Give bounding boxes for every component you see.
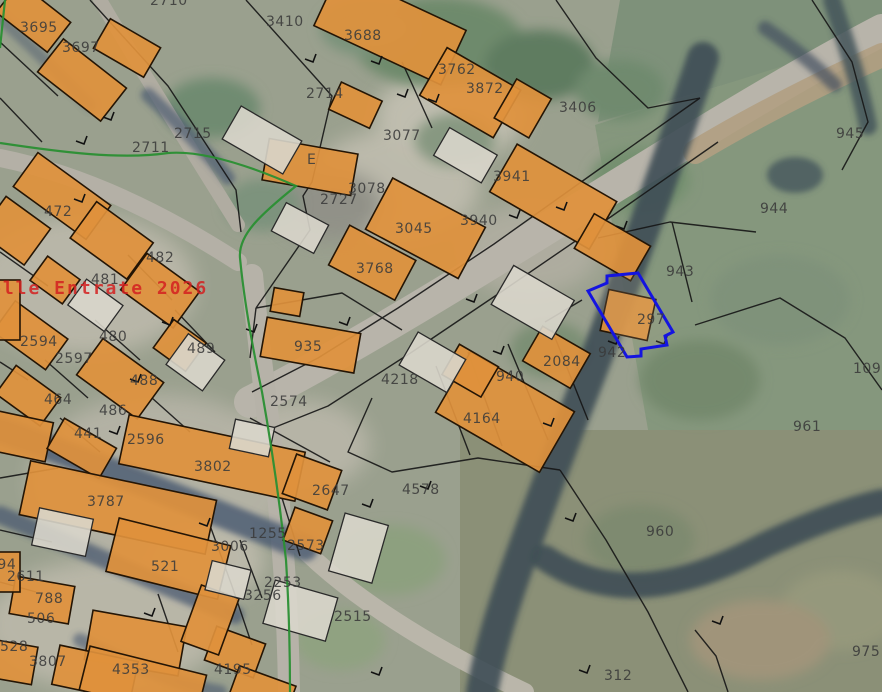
map-layers (0, 0, 882, 692)
map-canvas[interactable]: 3695369727103410368827142715271137623872… (0, 0, 882, 692)
